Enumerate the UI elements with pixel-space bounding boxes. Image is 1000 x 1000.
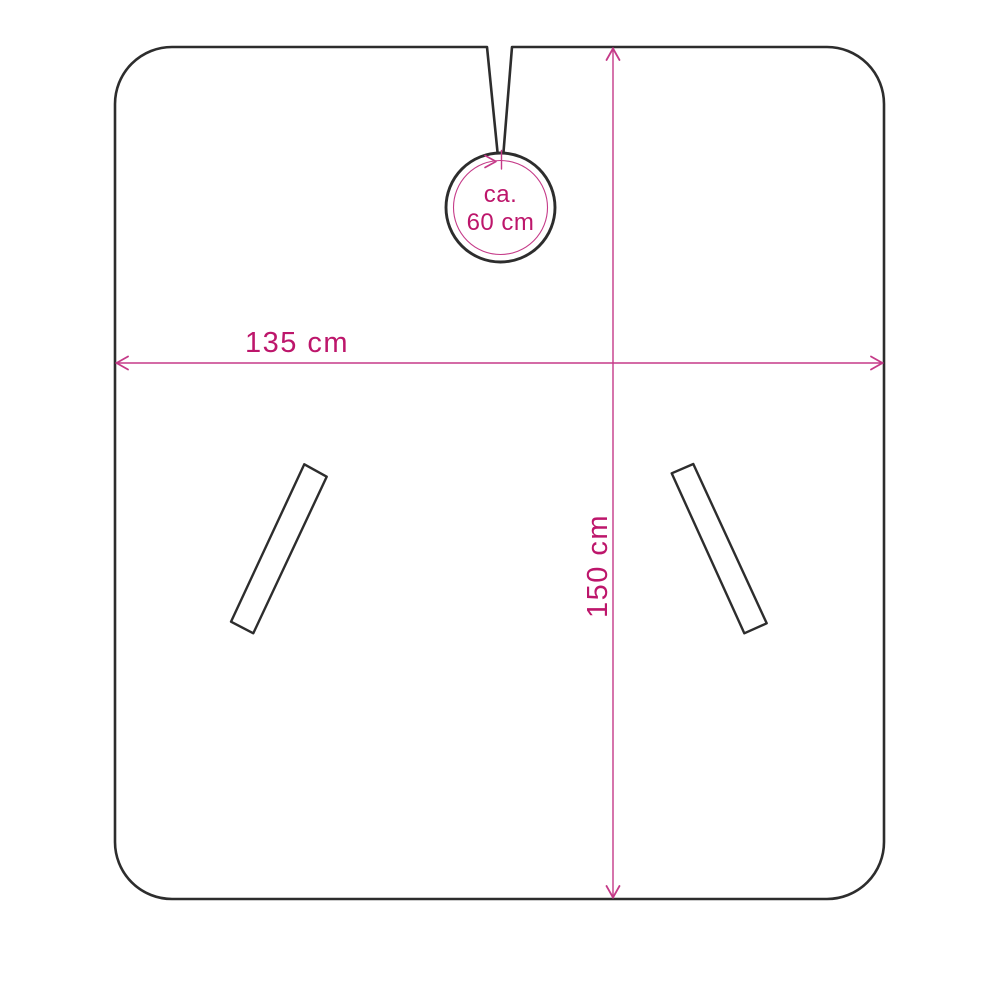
dimension-drawing: 135 cm 150 cm ca. 60 cm (0, 0, 1000, 1000)
dimension-lines-group (116, 48, 883, 898)
neck-label-value: 60 cm (467, 209, 535, 236)
outline-group (115, 47, 884, 899)
left-arm-slit (231, 464, 327, 633)
cape-outline (115, 47, 884, 899)
width-dimension-label: 135 cm (245, 327, 349, 359)
dimension-labels-group: 135 cm 150 cm ca. 60 cm (245, 181, 614, 618)
neck-label-approx: ca. (484, 181, 518, 208)
right-arm-slit (672, 464, 767, 633)
cape-diagram-svg: 135 cm 150 cm ca. 60 cm (0, 0, 1000, 1000)
height-dimension-label: 150 cm (582, 514, 614, 618)
